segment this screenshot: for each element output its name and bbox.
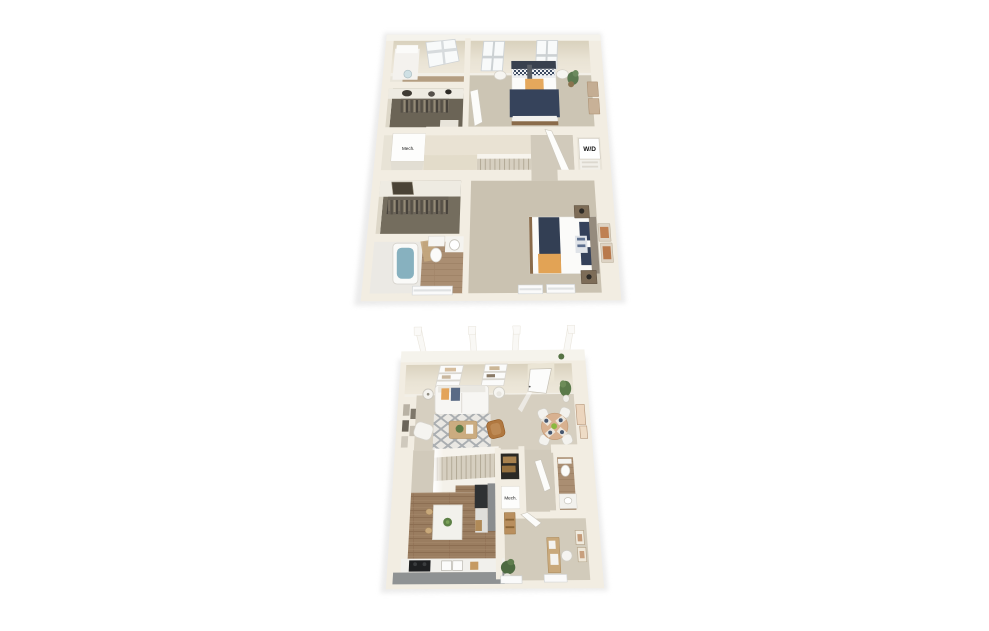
svg-text:Mech.: Mech. <box>402 146 415 151</box>
svg-text:Mech.: Mech. <box>504 496 517 501</box>
svg-text:W/D: W/D <box>583 146 596 153</box>
